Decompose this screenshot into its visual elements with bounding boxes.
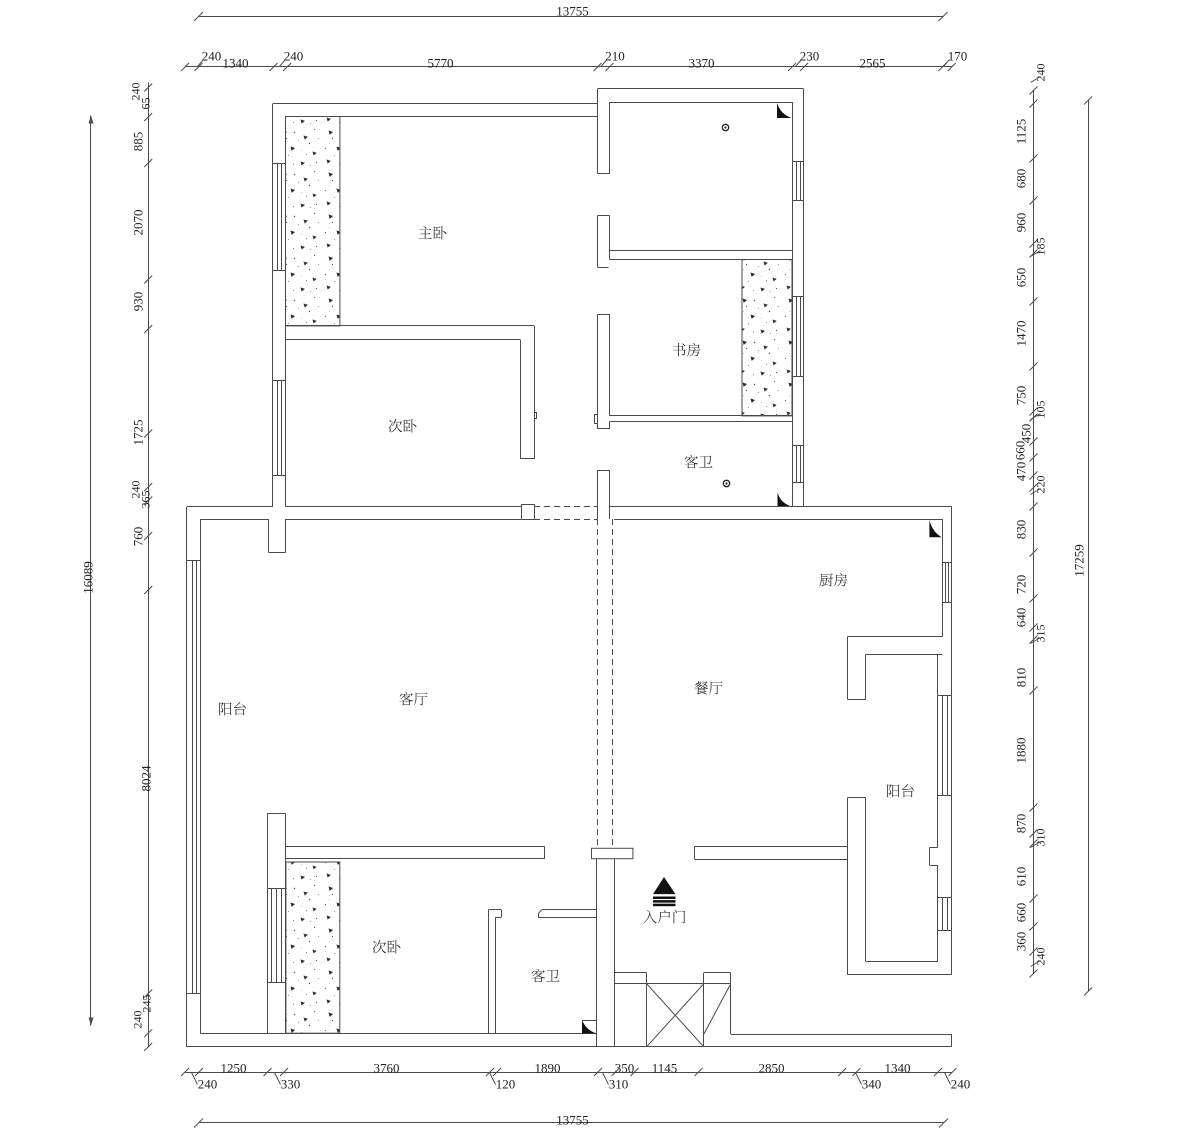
svg-text:450: 450 xyxy=(1019,424,1034,444)
svg-text:1125: 1125 xyxy=(1014,119,1029,145)
svg-text:13755: 13755 xyxy=(556,4,589,19)
svg-text:240: 240 xyxy=(131,1011,145,1029)
svg-text:105: 105 xyxy=(1034,401,1048,419)
svg-text:240: 240 xyxy=(951,1077,971,1092)
svg-text:3370: 3370 xyxy=(689,56,715,71)
svg-text:340: 340 xyxy=(862,1077,882,1092)
svg-text:470: 470 xyxy=(1014,462,1029,482)
svg-text:660: 660 xyxy=(1014,903,1029,923)
svg-text:1250: 1250 xyxy=(221,1061,247,1076)
svg-text:1340: 1340 xyxy=(885,1061,911,1076)
svg-text:240: 240 xyxy=(284,49,304,64)
svg-text:2070: 2070 xyxy=(131,210,146,236)
svg-text:350: 350 xyxy=(615,1061,635,1076)
svg-text:17259: 17259 xyxy=(1072,544,1087,577)
svg-text:65: 65 xyxy=(139,98,153,110)
svg-text:1145: 1145 xyxy=(652,1061,678,1076)
svg-text:5770: 5770 xyxy=(428,56,454,71)
svg-text:650: 650 xyxy=(1014,268,1029,288)
svg-text:310: 310 xyxy=(609,1077,629,1092)
svg-text:2850: 2850 xyxy=(759,1061,785,1076)
svg-text:640: 640 xyxy=(1014,608,1029,628)
svg-text:120: 120 xyxy=(496,1077,516,1092)
svg-text:750: 750 xyxy=(1014,386,1029,406)
svg-text:210: 210 xyxy=(605,49,625,64)
svg-text:1470: 1470 xyxy=(1014,321,1029,347)
svg-text:13755: 13755 xyxy=(556,1113,589,1128)
svg-text:230: 230 xyxy=(800,49,820,64)
svg-text:240: 240 xyxy=(1034,948,1048,966)
svg-text:885: 885 xyxy=(131,132,146,152)
svg-text:170: 170 xyxy=(948,49,968,64)
svg-text:3760: 3760 xyxy=(374,1061,400,1076)
svg-text:185: 185 xyxy=(1034,238,1048,256)
svg-text:8024: 8024 xyxy=(139,765,154,792)
svg-text:1890: 1890 xyxy=(535,1061,561,1076)
svg-text:610: 610 xyxy=(1014,867,1029,887)
svg-text:2565: 2565 xyxy=(860,56,886,71)
svg-text:16089: 16089 xyxy=(81,561,96,594)
svg-text:360: 360 xyxy=(1014,932,1029,952)
svg-text:1880: 1880 xyxy=(1014,738,1029,764)
svg-text:660: 660 xyxy=(1013,441,1028,461)
svg-text:1340: 1340 xyxy=(223,56,249,71)
svg-text:240: 240 xyxy=(1034,64,1048,82)
svg-text:960: 960 xyxy=(1014,213,1029,233)
svg-text:315: 315 xyxy=(1034,625,1048,643)
svg-text:220: 220 xyxy=(1034,476,1048,494)
svg-text:245: 245 xyxy=(140,995,154,1013)
svg-text:760: 760 xyxy=(131,527,146,547)
svg-text:240: 240 xyxy=(202,49,222,64)
svg-text:680: 680 xyxy=(1014,169,1029,189)
svg-text:330: 330 xyxy=(281,1077,301,1092)
svg-text:830: 830 xyxy=(1014,520,1029,540)
svg-text:870: 870 xyxy=(1014,814,1029,834)
svg-text:365: 365 xyxy=(139,491,153,509)
svg-text:930: 930 xyxy=(131,292,146,312)
svg-text:1725: 1725 xyxy=(131,420,146,446)
svg-text:310: 310 xyxy=(1034,829,1048,847)
svg-text:810: 810 xyxy=(1014,668,1029,688)
svg-text:720: 720 xyxy=(1014,575,1029,595)
svg-text:240: 240 xyxy=(198,1077,218,1092)
